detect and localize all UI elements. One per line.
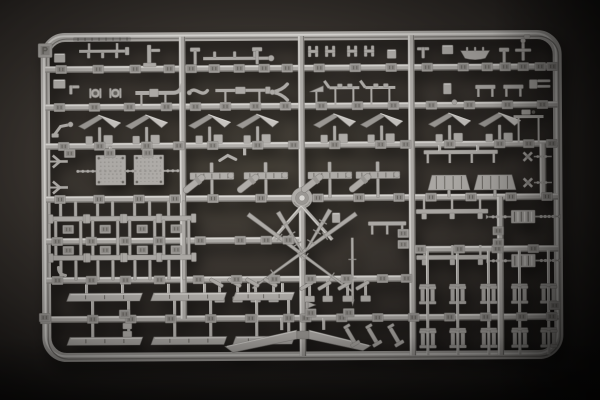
sprue-photo [0,0,600,400]
photo-canvas [0,0,600,400]
bottom-edge-shade [0,0,600,400]
